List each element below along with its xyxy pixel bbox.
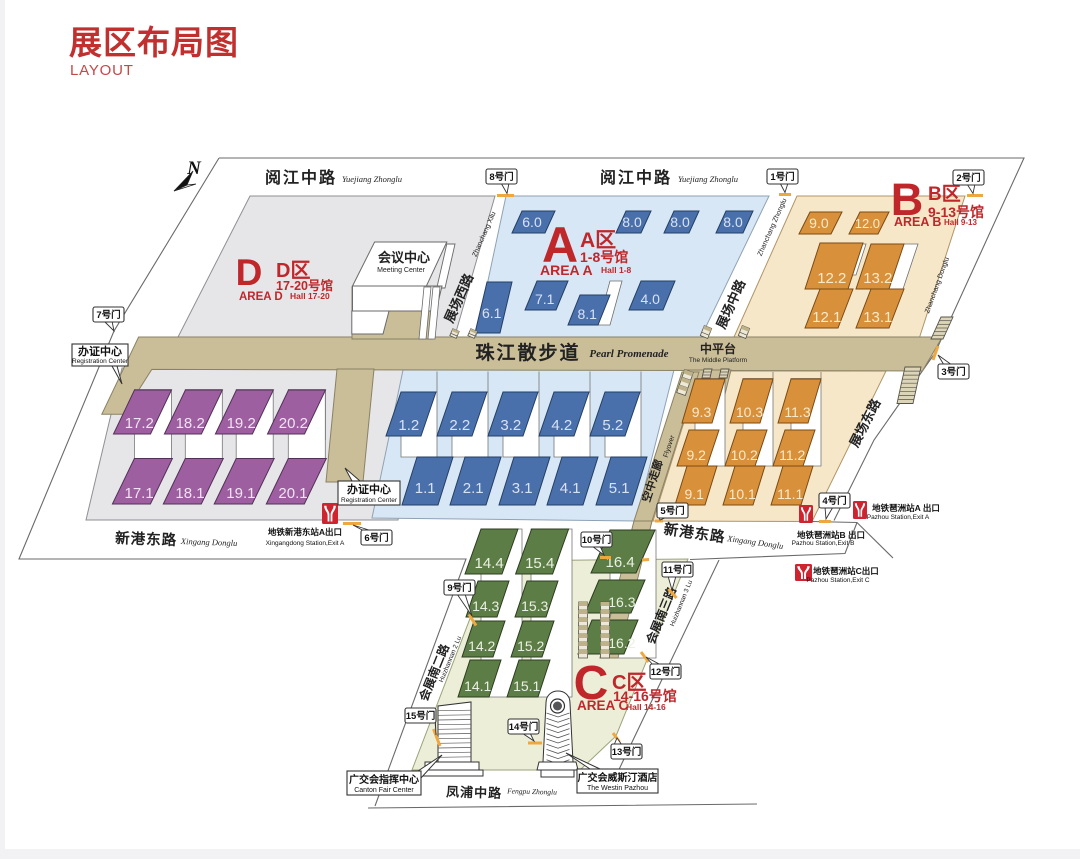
svg-text:阅江中路: 阅江中路 bbox=[265, 168, 337, 187]
svg-text:地铁琶洲站A 出口: 地铁琶洲站A 出口 bbox=[872, 503, 940, 513]
svg-text:凤浦中路: 凤浦中路 bbox=[446, 784, 502, 800]
svg-text:6.0: 6.0 bbox=[522, 214, 542, 230]
svg-text:Hall 9-13: Hall 9-13 bbox=[944, 218, 977, 227]
svg-text:13.1: 13.1 bbox=[863, 309, 892, 326]
svg-text:Registration Center: Registration Center bbox=[72, 358, 129, 365]
svg-text:15.3: 15.3 bbox=[521, 598, 548, 614]
svg-text:4.0: 4.0 bbox=[640, 291, 660, 307]
svg-text:15.2: 15.2 bbox=[517, 638, 544, 654]
svg-text:10号门: 10号门 bbox=[582, 534, 612, 546]
svg-text:14.2: 14.2 bbox=[468, 638, 495, 654]
svg-text:地铁琶洲站C出口: 地铁琶洲站C出口 bbox=[813, 566, 879, 576]
svg-text:LAYOUT: LAYOUT bbox=[70, 62, 134, 79]
svg-text:8号门: 8号门 bbox=[489, 171, 513, 183]
svg-text:9号门: 9号门 bbox=[447, 582, 471, 594]
svg-text:Xingang Donglu: Xingang Donglu bbox=[180, 536, 238, 548]
svg-text:17.2: 17.2 bbox=[125, 415, 154, 432]
svg-text:4.2: 4.2 bbox=[551, 417, 572, 434]
svg-text:Canton Fair Center: Canton Fair Center bbox=[354, 787, 414, 794]
svg-text:7号门: 7号门 bbox=[96, 309, 120, 321]
svg-text:14.4: 14.4 bbox=[474, 555, 503, 572]
svg-text:3.2: 3.2 bbox=[500, 417, 521, 434]
svg-text:12号门: 12号门 bbox=[651, 666, 681, 678]
svg-text:AREA B: AREA B bbox=[894, 215, 941, 229]
svg-text:办证中心: 办证中心 bbox=[78, 344, 122, 358]
svg-text:19.2: 19.2 bbox=[227, 415, 256, 432]
svg-text:11.3: 11.3 bbox=[784, 404, 810, 420]
svg-text:3.1: 3.1 bbox=[512, 480, 533, 497]
svg-text:Yuejiang Zhonglu: Yuejiang Zhonglu bbox=[678, 174, 738, 184]
svg-text:11.2: 11.2 bbox=[779, 447, 805, 463]
svg-text:广交会威斯汀酒店: 广交会威斯汀酒店 bbox=[578, 771, 658, 784]
svg-text:8.1: 8.1 bbox=[577, 306, 597, 322]
svg-text:办证中心: 办证中心 bbox=[347, 482, 391, 496]
svg-text:18.1: 18.1 bbox=[175, 485, 204, 502]
svg-text:12.0: 12.0 bbox=[855, 216, 880, 231]
svg-text:地铁新港东站A出口: 地铁新港东站A出口 bbox=[268, 527, 342, 537]
svg-text:4号门: 4号门 bbox=[822, 495, 846, 507]
svg-text:5.2: 5.2 bbox=[602, 417, 623, 434]
svg-text:Xingangdong Station,Exit A: Xingangdong Station,Exit A bbox=[266, 540, 345, 547]
svg-text:14.3: 14.3 bbox=[472, 598, 499, 614]
svg-text:会议中心: 会议中心 bbox=[378, 250, 430, 265]
svg-text:Registration Center: Registration Center bbox=[341, 497, 398, 504]
svg-text:3号门: 3号门 bbox=[941, 366, 965, 378]
svg-text:9.1: 9.1 bbox=[684, 486, 704, 502]
svg-text:Hall 14-16: Hall 14-16 bbox=[626, 702, 666, 712]
svg-text:20.2: 20.2 bbox=[279, 415, 308, 432]
svg-text:9.3: 9.3 bbox=[692, 404, 712, 420]
svg-text:11号门: 11号门 bbox=[663, 564, 692, 576]
svg-text:5.1: 5.1 bbox=[609, 480, 630, 497]
svg-text:10.1: 10.1 bbox=[729, 486, 756, 502]
svg-text:新港东路: 新港东路 bbox=[115, 529, 178, 549]
svg-text:2号门: 2号门 bbox=[956, 172, 980, 184]
svg-text:10.3: 10.3 bbox=[736, 404, 763, 420]
svg-text:8.0: 8.0 bbox=[670, 214, 690, 230]
svg-text:Hall 1-8: Hall 1-8 bbox=[601, 265, 632, 275]
svg-text:Meeting Center: Meeting Center bbox=[377, 267, 426, 274]
svg-text:1.2: 1.2 bbox=[398, 417, 419, 434]
svg-text:5号门: 5号门 bbox=[660, 505, 684, 517]
svg-text:13号门: 13号门 bbox=[612, 746, 642, 758]
svg-text:Pazhou Station,Exit B: Pazhou Station,Exit B bbox=[792, 540, 855, 547]
svg-text:地铁琶洲站B 出口: 地铁琶洲站B 出口 bbox=[797, 530, 865, 540]
svg-text:Yuejiang Zhonglu: Yuejiang Zhonglu bbox=[342, 174, 402, 184]
svg-text:D: D bbox=[236, 252, 263, 293]
svg-text:1号门: 1号门 bbox=[770, 171, 794, 183]
svg-text:12.1: 12.1 bbox=[812, 309, 841, 326]
svg-text:4.1: 4.1 bbox=[560, 480, 581, 497]
svg-text:阅江中路: 阅江中路 bbox=[600, 168, 672, 187]
svg-text:广交会指挥中心: 广交会指挥中心 bbox=[349, 773, 419, 786]
svg-text:17.1: 17.1 bbox=[124, 485, 153, 502]
svg-text:1.1: 1.1 bbox=[415, 480, 436, 497]
svg-text:Pazhou Station,Exit A: Pazhou Station,Exit A bbox=[867, 514, 930, 521]
svg-text:B区: B区 bbox=[928, 184, 961, 205]
svg-text:8.0: 8.0 bbox=[622, 214, 642, 230]
svg-text:The Westin Pazhou: The Westin Pazhou bbox=[587, 785, 648, 792]
svg-text:9.2: 9.2 bbox=[686, 447, 706, 463]
svg-text:6.1: 6.1 bbox=[482, 305, 502, 321]
svg-text:中平台: 中平台 bbox=[700, 341, 736, 356]
svg-text:Fengpu Zhonglu: Fengpu Zhonglu bbox=[506, 786, 557, 796]
svg-text:2.2: 2.2 bbox=[449, 417, 470, 434]
svg-text:9.0: 9.0 bbox=[809, 215, 829, 231]
svg-text:Pazhou Station,Exit C: Pazhou Station,Exit C bbox=[806, 577, 870, 584]
svg-text:19.1: 19.1 bbox=[226, 485, 255, 502]
svg-text:11.1: 11.1 bbox=[777, 486, 803, 502]
svg-text:15号门: 15号门 bbox=[406, 710, 436, 722]
svg-text:AREA C: AREA C bbox=[577, 698, 629, 713]
svg-text:8.0: 8.0 bbox=[723, 214, 743, 230]
svg-text:6号门: 6号门 bbox=[364, 532, 388, 544]
svg-text:10.2: 10.2 bbox=[731, 447, 758, 463]
svg-text:18.2: 18.2 bbox=[176, 415, 205, 432]
svg-text:13.2: 13.2 bbox=[863, 270, 892, 287]
svg-text:AREA A: AREA A bbox=[540, 262, 593, 278]
svg-text:珠江散步道: 珠江散步道 bbox=[475, 341, 580, 364]
svg-text:20.1: 20.1 bbox=[278, 485, 307, 502]
svg-text:展区布局图: 展区布局图 bbox=[69, 24, 239, 61]
svg-text:2.1: 2.1 bbox=[463, 480, 484, 497]
svg-text:Hall 17-20: Hall 17-20 bbox=[290, 291, 330, 301]
svg-text:AREA D: AREA D bbox=[239, 291, 283, 303]
svg-text:14号门: 14号门 bbox=[509, 721, 539, 733]
svg-text:14.1: 14.1 bbox=[464, 678, 491, 694]
svg-text:16.2: 16.2 bbox=[608, 635, 635, 651]
svg-text:16.3: 16.3 bbox=[608, 594, 635, 610]
svg-text:15.1: 15.1 bbox=[513, 678, 540, 694]
svg-text:7.1: 7.1 bbox=[535, 291, 555, 307]
svg-text:The Middle Platform: The Middle Platform bbox=[689, 357, 747, 364]
svg-text:15.4: 15.4 bbox=[525, 555, 554, 572]
svg-text:12.2: 12.2 bbox=[817, 270, 846, 287]
svg-text:Pearl Promenade: Pearl Promenade bbox=[589, 348, 668, 360]
